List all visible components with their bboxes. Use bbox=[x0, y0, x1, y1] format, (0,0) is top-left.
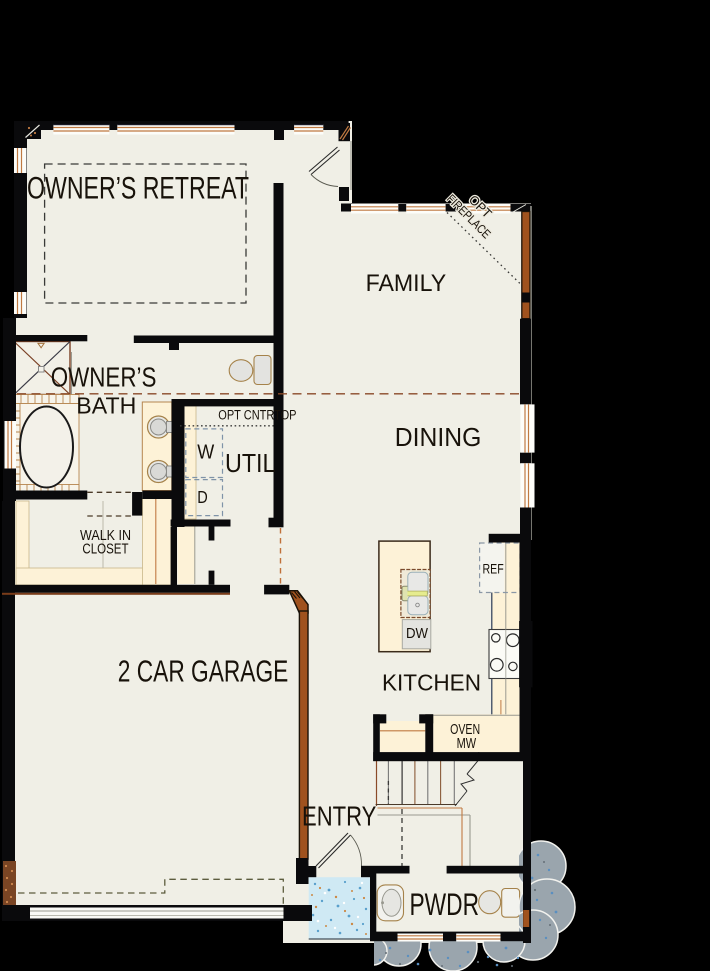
svg-text:OWNER’S: OWNER’S bbox=[51, 361, 157, 392]
svg-text:OWNER’S RETREAT: OWNER’S RETREAT bbox=[27, 170, 249, 206]
svg-text:CLOSET: CLOSET bbox=[82, 540, 128, 557]
svg-text:UTIL: UTIL bbox=[225, 450, 276, 478]
svg-text:ENTRY: ENTRY bbox=[302, 801, 376, 832]
svg-text:OPT CNTRTOP: OPT CNTRTOP bbox=[218, 408, 296, 423]
svg-text:D: D bbox=[197, 487, 208, 507]
svg-text:DINING: DINING bbox=[395, 422, 482, 452]
svg-text:REF: REF bbox=[483, 562, 504, 577]
svg-text:2 CAR GARAGE: 2 CAR GARAGE bbox=[118, 655, 288, 689]
svg-text:FAMILY: FAMILY bbox=[366, 270, 447, 297]
svg-text:PWDR: PWDR bbox=[410, 887, 480, 922]
svg-text:DW: DW bbox=[406, 626, 428, 642]
svg-text:BATH: BATH bbox=[76, 393, 136, 419]
svg-text:KITCHEN: KITCHEN bbox=[382, 669, 481, 695]
svg-text:MW: MW bbox=[457, 736, 477, 752]
svg-text:W: W bbox=[197, 441, 214, 463]
